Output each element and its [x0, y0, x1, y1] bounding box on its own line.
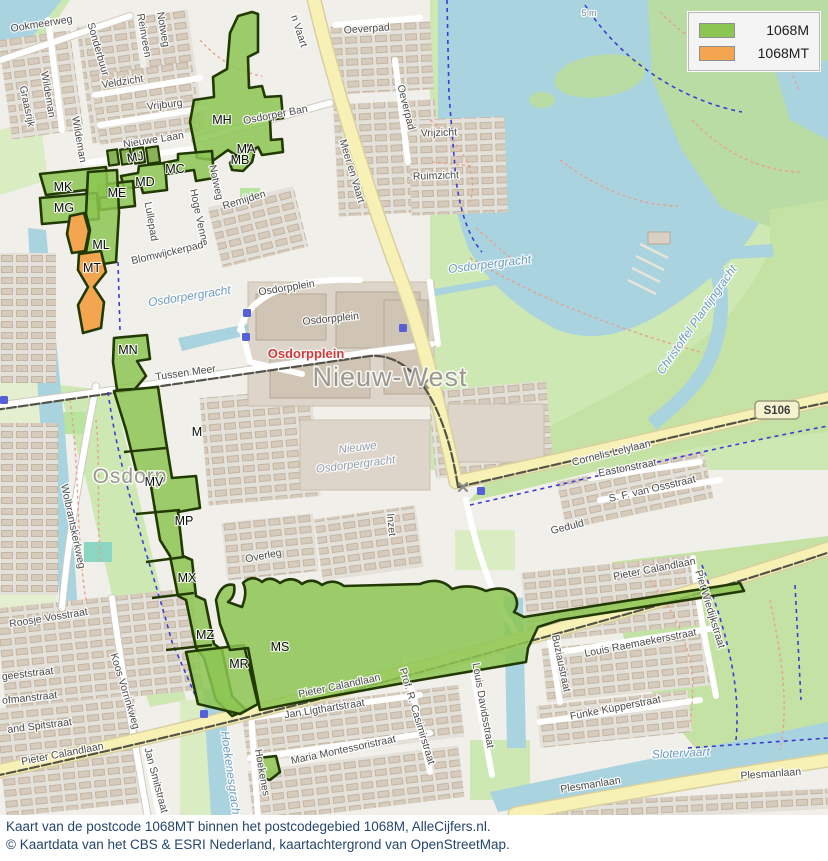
map-label: MZ — [196, 628, 214, 642]
map-label: MB — [231, 153, 250, 167]
area-MR — [186, 645, 258, 714]
map-label: S106 — [764, 405, 791, 417]
map-label: MV — [145, 475, 164, 489]
map-label: Inzet — [384, 513, 398, 537]
legend-label: 1068MT — [758, 45, 809, 61]
map-label: MP — [175, 514, 194, 528]
legend-swatch-green — [699, 23, 735, 38]
map-label: Osdorpplein — [268, 346, 345, 361]
map-label: MH — [212, 113, 231, 127]
map-label: MS — [271, 640, 290, 654]
map-canvas[interactable]: OokmeerwegSonderbuurWildemanWildemanGraa… — [0, 0, 828, 815]
map-label: MD — [135, 175, 154, 189]
map-caption: Kaart van de postcode 1068MT binnen het … — [0, 815, 828, 861]
map-label: MT — [83, 261, 101, 275]
area-MT-north — [67, 213, 89, 253]
caption-line-2: © Kaartdata van het CBS & ESRI Nederland… — [6, 836, 828, 854]
map-label: Vrijzicht — [421, 126, 458, 139]
map-label: Nieuw-West — [312, 362, 467, 392]
legend-item-1068M: 1068M — [699, 20, 809, 40]
basemap-svg[interactable]: OokmeerwegSonderbuurWildemanWildemanGraa… — [0, 0, 828, 815]
map-label: 5 m — [581, 8, 596, 18]
map-label: MR — [229, 657, 248, 671]
map-label: MN — [118, 343, 137, 357]
map-label: MX — [178, 571, 197, 585]
legend: 1068M 1068MT — [688, 12, 820, 71]
map-label: MG — [54, 201, 74, 215]
map-label: MJ — [126, 149, 145, 166]
map-label: ME — [108, 186, 127, 200]
caption-line-1: Kaart van de postcode 1068MT binnen het … — [6, 818, 828, 836]
map-label: MC — [165, 162, 184, 176]
map-label: M — [192, 425, 202, 439]
map-label: Ruimzicht — [413, 169, 460, 183]
map-label: ML — [92, 238, 109, 252]
map-label: MK — [54, 180, 73, 194]
map-screenshot: OokmeerwegSonderbuurWildemanWildemanGraa… — [0, 0, 828, 861]
legend-label: 1068M — [766, 22, 809, 38]
legend-item-1068MT: 1068MT — [699, 43, 809, 63]
legend-swatch-orange — [699, 46, 735, 61]
